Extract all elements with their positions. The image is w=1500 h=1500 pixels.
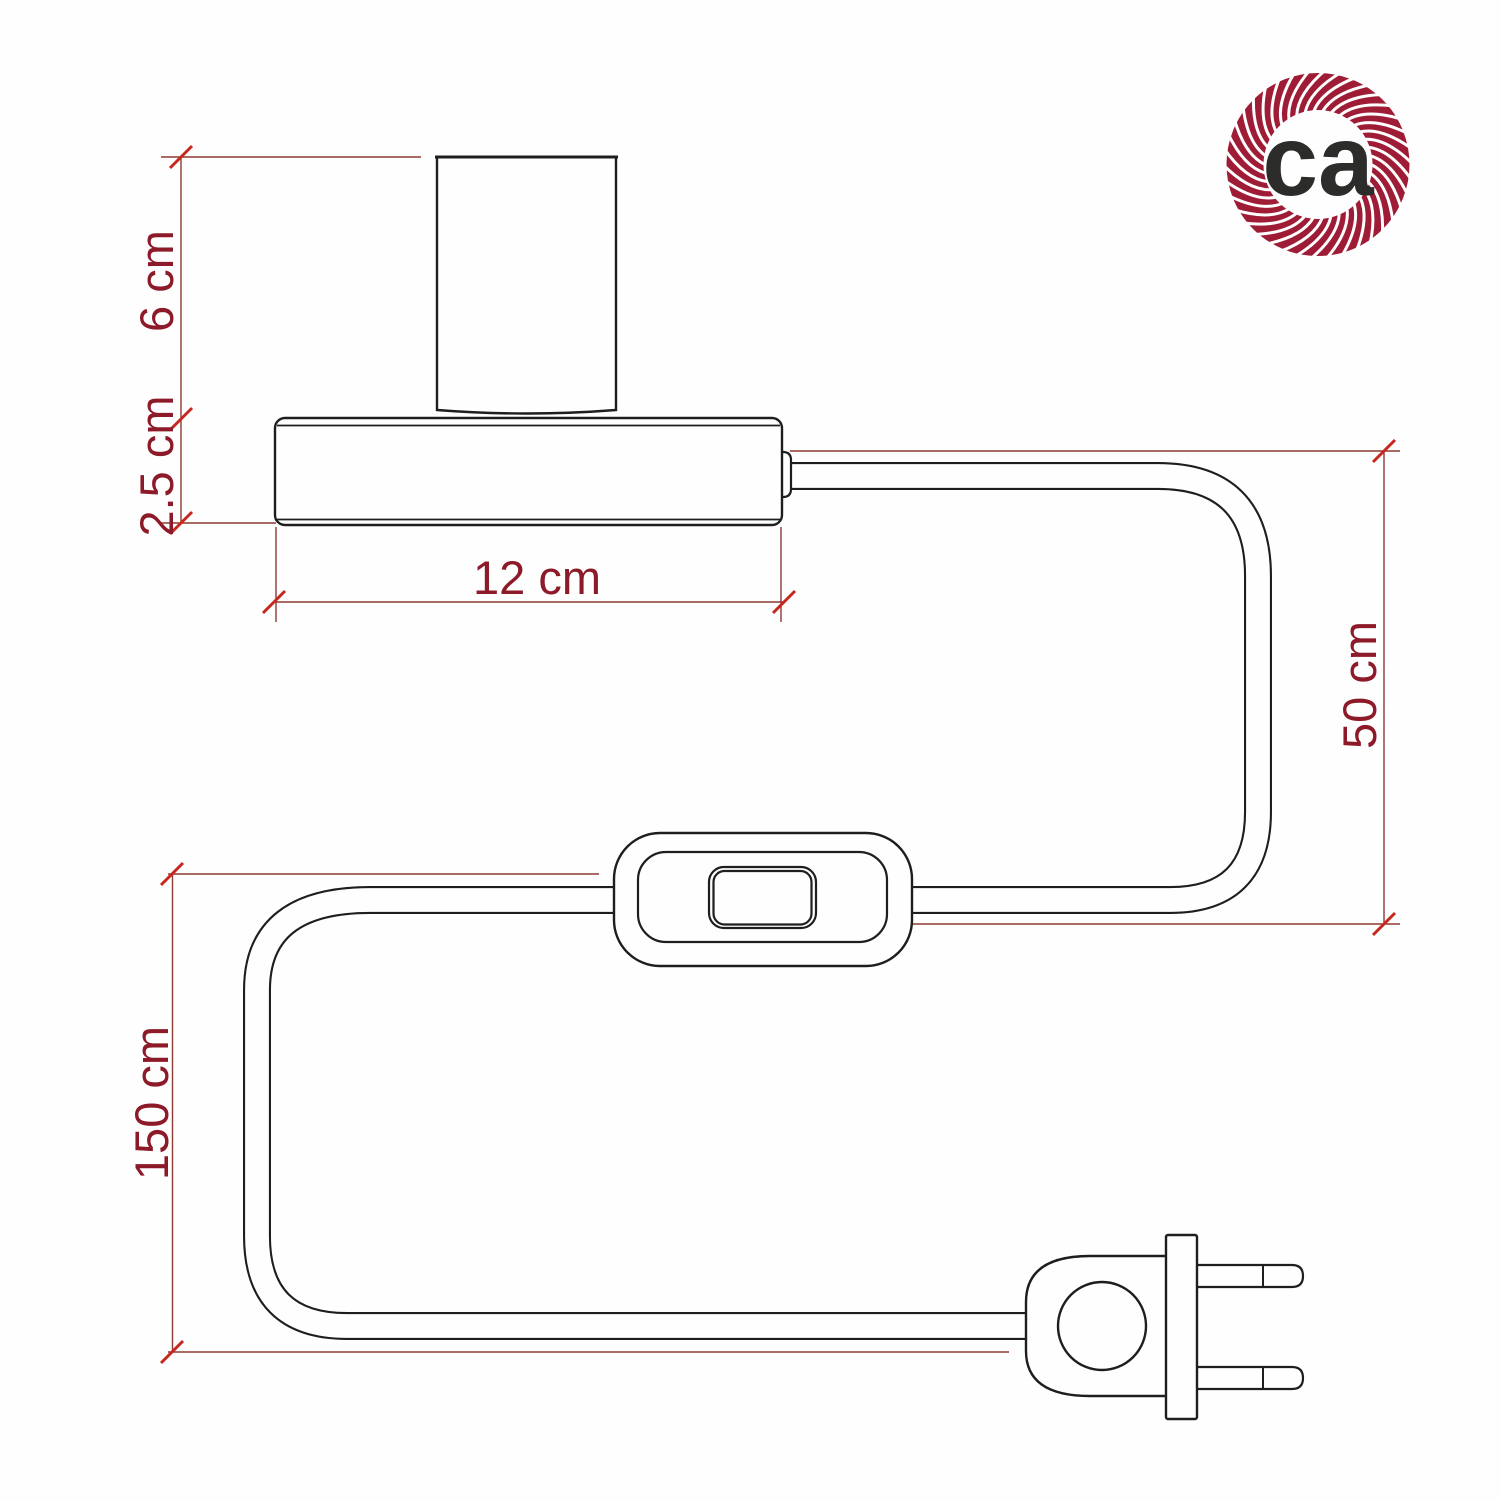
svg-text:12 cm: 12 cm xyxy=(473,551,601,604)
svg-text:150 cm: 150 cm xyxy=(125,1026,178,1180)
svg-text:2.5 cm: 2.5 cm xyxy=(130,395,183,536)
svg-text:ca: ca xyxy=(1262,105,1375,217)
svg-text:50 cm: 50 cm xyxy=(1333,621,1386,749)
svg-text:6 cm: 6 cm xyxy=(130,230,183,332)
